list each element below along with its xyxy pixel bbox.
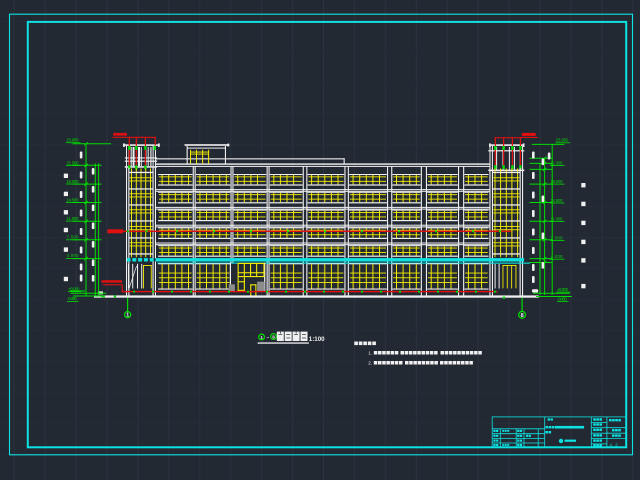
svg-text:7.500: 7.500 [67,235,80,240]
svg-text:A 2: A 2 [610,442,619,447]
svg-text:8: 8 [521,313,524,319]
svg-text:1.: 1. [368,351,372,356]
svg-text:1: 1 [260,335,263,340]
svg-text:-0.450: -0.450 [558,296,568,301]
svg-text:1: 1 [126,313,129,319]
svg-text:23.950: 23.950 [67,138,80,143]
svg-text:1:100: 1:100 [309,336,325,343]
svg-text:4.000: 4.000 [551,254,564,259]
svg-text:2.: 2. [368,361,372,366]
svg-text:±0.000: ±0.000 [69,287,81,292]
svg-text:14.500: 14.500 [67,197,80,202]
svg-text:21.500: 21.500 [67,160,80,165]
svg-text:4.000: 4.000 [67,253,80,258]
svg-text:7.500: 7.500 [551,235,564,240]
svg-text:11.000: 11.000 [67,216,80,221]
svg-text:8: 8 [272,335,275,340]
svg-text:11.000: 11.000 [551,216,564,221]
svg-text:±0.000: ±0.000 [557,287,569,292]
svg-text:18.000: 18.000 [551,179,564,184]
svg-text:-0.450: -0.450 [68,296,78,301]
svg-text:23.950: 23.950 [556,138,569,143]
svg-text:18.000: 18.000 [67,179,80,184]
svg-text:14.500: 14.500 [551,198,564,203]
svg-text:21.500: 21.500 [551,160,564,165]
svg-text:~: ~ [266,336,269,342]
